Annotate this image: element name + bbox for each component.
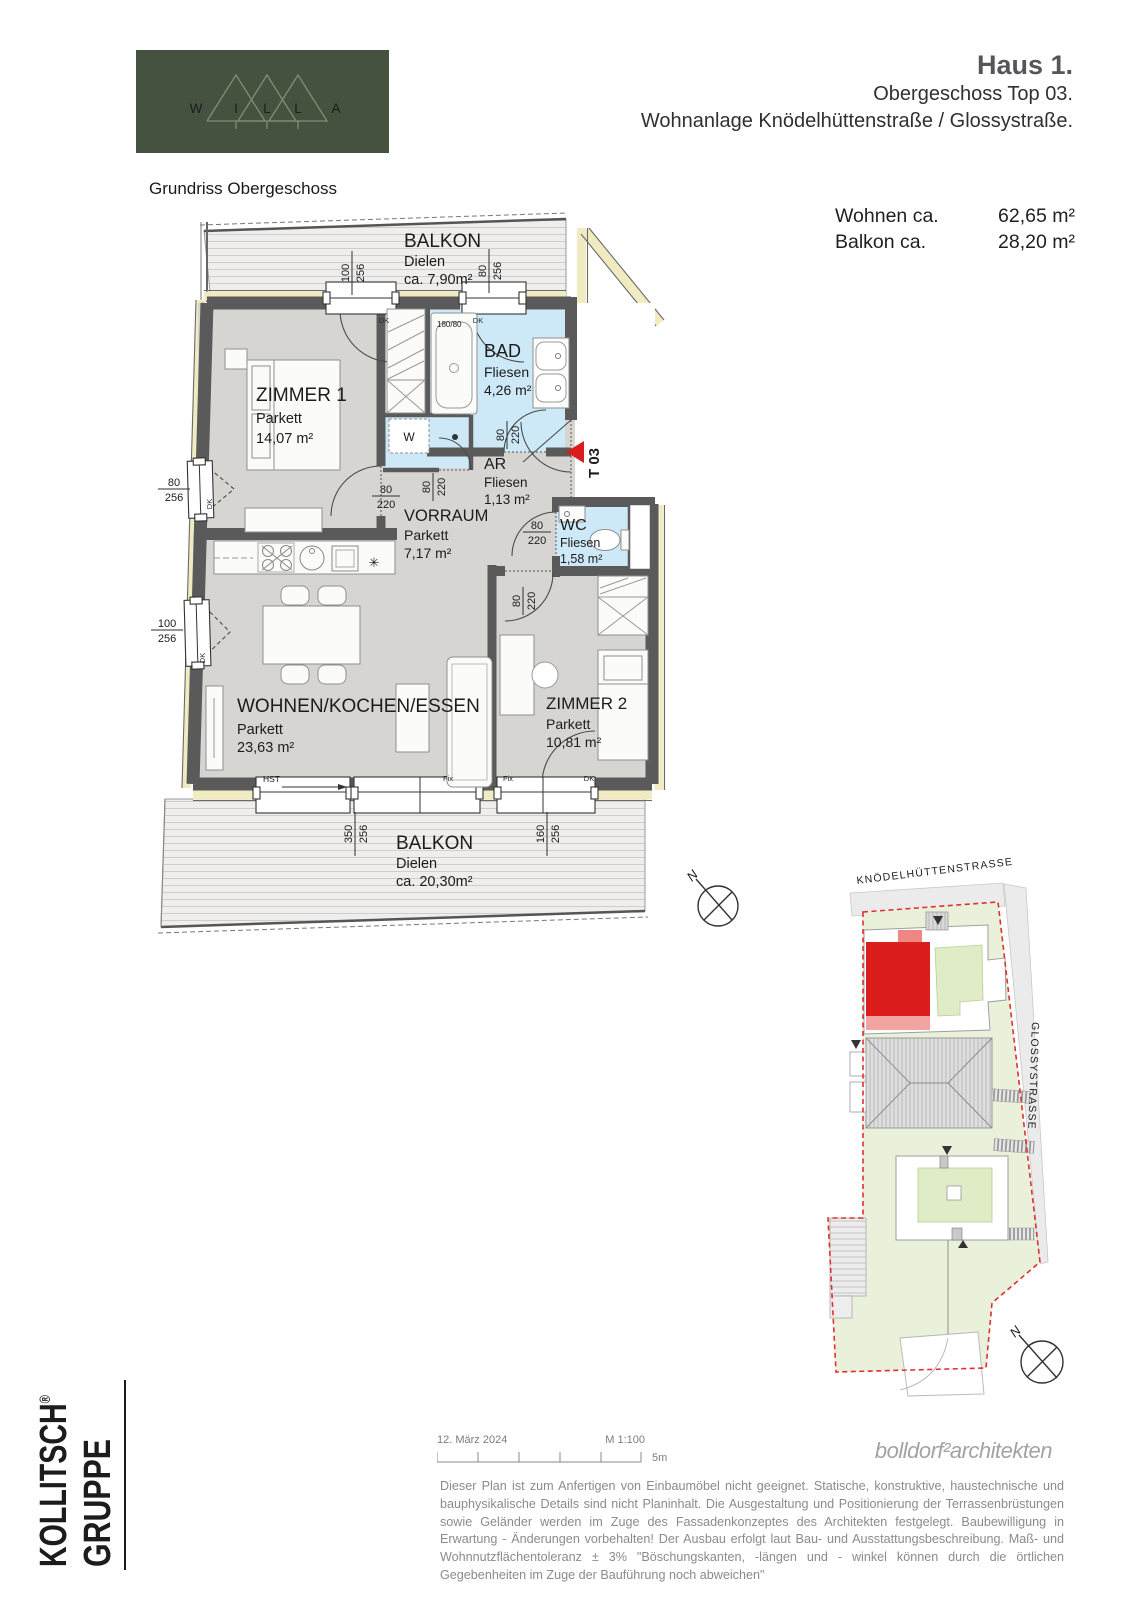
svg-text:256: 256 xyxy=(358,825,370,843)
haus3-footprint xyxy=(896,1146,1008,1248)
dim-window-100-256: 100 256 xyxy=(151,618,183,645)
architect-logo: bolldorf²architekten xyxy=(875,1438,1052,1464)
highlighted-unit xyxy=(866,942,930,1016)
svg-text:14,07 m²: 14,07 m² xyxy=(256,431,313,447)
haus2-roof xyxy=(850,1038,992,1128)
compass-icon: N xyxy=(684,866,738,926)
company-name: KOLLITSCH® xyxy=(33,1395,75,1567)
svg-text:10,81 m²: 10,81 m² xyxy=(546,734,602,750)
bathtub-size-label: 180/80 xyxy=(437,320,462,329)
svg-text:350: 350 xyxy=(343,825,355,843)
area-row: Wohnen ca. 62,65 m² xyxy=(835,203,1075,229)
room-label-zimmer2: ZIMMER 2 xyxy=(546,694,627,713)
area-summary: Wohnen ca. 62,65 m² Balkon ca. 28,20 m² xyxy=(835,203,1075,256)
svg-text:Parkett: Parkett xyxy=(546,716,590,732)
washer-label: W xyxy=(403,430,415,444)
svg-text:220: 220 xyxy=(528,535,546,547)
svg-text:256: 256 xyxy=(492,262,504,280)
svg-text:100: 100 xyxy=(340,264,352,282)
room-label-vorraum: VORRAUM xyxy=(404,507,488,525)
page-title: Haus 1. xyxy=(641,50,1073,81)
svg-text:Fliesen: Fliesen xyxy=(484,364,529,380)
svg-text:100: 100 xyxy=(158,618,176,630)
header-subtitle-project: Wohnanlage Knödelhüttenstraße / Glossyst… xyxy=(641,108,1073,135)
plan-sheet: W I L L A Haus 1. Obergeschoss Top 03. W… xyxy=(0,0,1131,1600)
floor-plan: 100 256 80 256 80 256 100 256 350 25 xyxy=(140,205,765,945)
svg-text:160: 160 xyxy=(535,825,547,843)
dk-label: DK xyxy=(379,316,389,325)
room-label-wc: WC xyxy=(560,517,587,534)
dishwasher-icon: ✳ xyxy=(369,555,380,570)
scale-bar xyxy=(437,1449,645,1463)
svg-text:80: 80 xyxy=(421,481,433,493)
svg-text:256: 256 xyxy=(550,825,562,843)
fix-label: Fix xyxy=(503,774,513,783)
fix-label: Fix xyxy=(443,774,453,783)
svg-text:220: 220 xyxy=(377,499,395,511)
svg-text:ca. 7,90m²: ca. 7,90m² xyxy=(404,272,473,288)
svg-text:Fliesen: Fliesen xyxy=(560,536,600,550)
room-label-balkon-top: BALKON xyxy=(404,231,481,252)
svg-text:23,63 m²: 23,63 m² xyxy=(237,740,294,756)
svg-text:256: 256 xyxy=(158,633,176,645)
svg-text:80: 80 xyxy=(168,477,180,489)
haus1-footprint xyxy=(864,912,1006,1034)
room-label-zimmer1: ZIMMER 1 xyxy=(256,385,347,406)
disclaimer-text: Dieser Plan ist zum Anfertigen von Einba… xyxy=(440,1478,1064,1585)
svg-text:Parkett: Parkett xyxy=(404,527,448,543)
shaft xyxy=(629,504,651,570)
svg-text:7,17 m²: 7,17 m² xyxy=(404,545,452,561)
svg-text:Dielen: Dielen xyxy=(396,856,437,872)
site-plan: KNÖDELHÜTTENSTRASSE GLOSSYSTRASSE N xyxy=(798,846,1131,1406)
company-group: GRUPPE xyxy=(77,1439,119,1567)
svg-text:80: 80 xyxy=(511,595,523,607)
scale-block: 12. März 2024 M 1:100 xyxy=(437,1434,645,1466)
svg-text:4,26 m²: 4,26 m² xyxy=(484,382,532,398)
footer-divider xyxy=(124,1380,126,1570)
svg-text:80: 80 xyxy=(531,520,543,532)
window-left-zimmer1 xyxy=(187,458,214,522)
area-label: Wohnen ca. xyxy=(835,203,939,229)
header-subtitle-top: Obergeschoss Top 03. xyxy=(641,81,1073,108)
header: Haus 1. Obergeschoss Top 03. Wohnanlage … xyxy=(641,50,1073,135)
area-value: 28,20 m² xyxy=(998,229,1075,255)
svg-text:1,58 m²: 1,58 m² xyxy=(560,552,602,566)
scale-end-label: 5m xyxy=(652,1452,667,1464)
dk-label: DK xyxy=(205,499,214,509)
dk-label: DK xyxy=(198,653,207,663)
logo-letter: L xyxy=(294,101,302,116)
willa-logo: W I L L A xyxy=(136,50,389,153)
svg-text:Fliesen: Fliesen xyxy=(484,475,528,490)
area-row: Balkon ca. 28,20 m² xyxy=(835,229,1075,255)
area-value: 62,65 m² xyxy=(998,203,1075,229)
svg-text:220: 220 xyxy=(510,426,522,444)
svg-text:80: 80 xyxy=(495,429,507,441)
svg-text:Dielen: Dielen xyxy=(404,254,445,270)
room-label-balkon-bottom: BALKON xyxy=(396,833,473,854)
hst-label: HST xyxy=(263,774,280,784)
svg-text:220: 220 xyxy=(526,592,538,610)
logo-letter: A xyxy=(331,101,340,116)
room-label-wohnen: WOHNEN/KOCHEN/ESSEN xyxy=(237,696,480,717)
kollitsch-logo: KOLLITSCH® GRUPPE xyxy=(0,1370,140,1600)
entrance-marker-icon xyxy=(851,1040,861,1049)
logo-letter: W xyxy=(190,101,203,116)
room-label-ar: AR xyxy=(484,456,506,473)
svg-text:220: 220 xyxy=(436,478,448,496)
svg-text:256: 256 xyxy=(165,492,183,504)
dk-label: DK xyxy=(473,316,483,325)
dim-window-80-256: 80 256 xyxy=(158,477,190,504)
room-label-bad: BAD xyxy=(484,341,521,361)
dk-label: DK xyxy=(584,774,594,783)
svg-text:1,13 m²: 1,13 m² xyxy=(484,492,530,507)
svg-text:80: 80 xyxy=(380,484,392,496)
logo-letter: L xyxy=(263,101,271,116)
svg-text:Parkett: Parkett xyxy=(237,722,283,738)
svg-text:256: 256 xyxy=(355,264,367,282)
logo-letter: I xyxy=(234,101,238,116)
compass-icon: N xyxy=(1007,1322,1063,1383)
svg-text:ca. 20,30m²: ca. 20,30m² xyxy=(396,874,473,890)
unit-number-label: T 03 xyxy=(586,448,603,478)
plan-scale: M 1:100 xyxy=(605,1434,645,1446)
svg-text:80: 80 xyxy=(477,265,489,277)
area-label: Balkon ca. xyxy=(835,229,926,255)
street-label-top: KNÖDELHÜTTENSTRASSE xyxy=(856,856,1014,887)
svg-text:Parkett: Parkett xyxy=(256,411,302,427)
plan-title: Grundriss Obergeschoss xyxy=(149,179,337,199)
plan-date: 12. März 2024 xyxy=(437,1434,507,1446)
